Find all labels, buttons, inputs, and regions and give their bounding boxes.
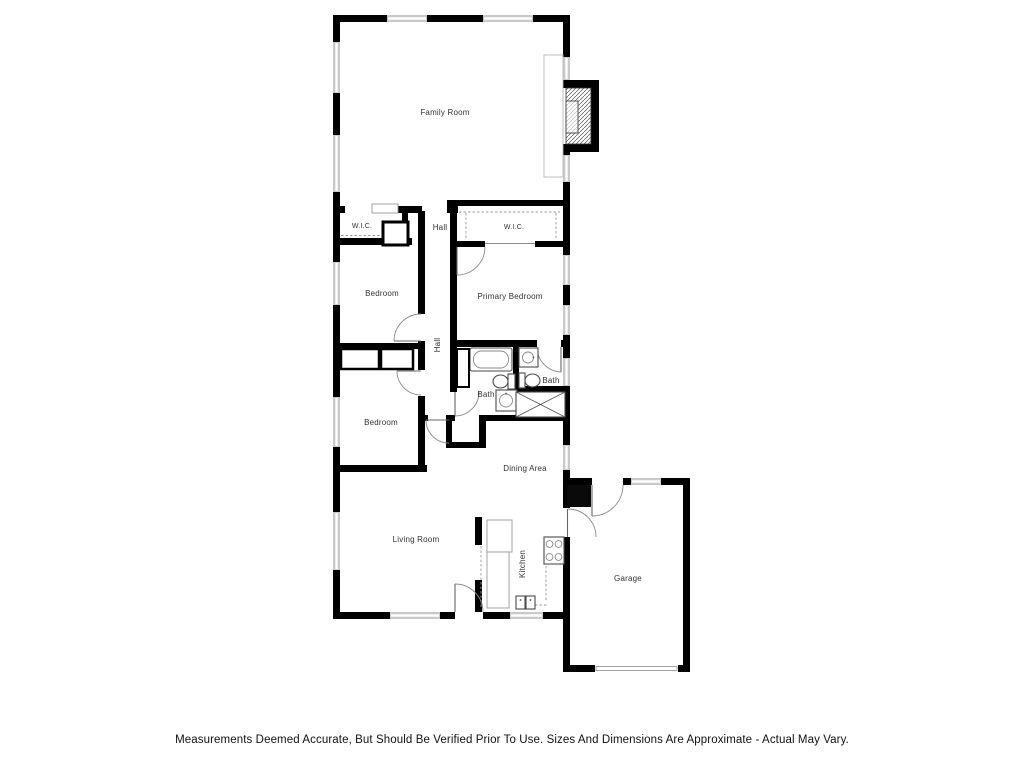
room-label-hall-upper: Hall — [433, 223, 448, 232]
cased-opening — [372, 204, 398, 213]
room-label-dining-area: Dining Area — [503, 464, 547, 473]
wall — [563, 619, 570, 672]
room-label-wic-left: W.I.C. — [352, 223, 372, 230]
room-label-bedroom-1: Bedroom — [365, 289, 399, 298]
wall — [450, 340, 537, 347]
door-opening — [592, 478, 623, 485]
water-heater — [567, 485, 591, 507]
wall — [535, 241, 570, 247]
wall — [418, 211, 425, 314]
floor-plan-page: Family Room W.I.C. Hall W.I.C. Bedroom P… — [0, 0, 1024, 768]
faucet — [533, 357, 535, 359]
sink-counter — [519, 348, 538, 367]
room-label-bath-hall: Bath — [477, 390, 494, 399]
wall — [450, 241, 485, 247]
primary-bedroom-door — [457, 247, 485, 275]
closet — [341, 349, 379, 369]
bedroom2-door — [397, 371, 421, 395]
stove — [544, 537, 564, 564]
drain — [520, 599, 522, 601]
faucet — [505, 393, 507, 395]
kitchen-sink — [516, 596, 525, 609]
room-label-living-room: Living Room — [393, 535, 440, 544]
hall-bath-door — [455, 392, 479, 416]
garage-door — [596, 667, 677, 671]
drain — [530, 599, 532, 601]
bedroom1-door — [394, 314, 421, 341]
toilet-tank — [508, 374, 515, 389]
kitchen-sink — [526, 596, 535, 609]
closet-wall — [446, 442, 486, 448]
firebox — [566, 101, 578, 133]
room-label-bedroom-2: Bedroom — [364, 418, 398, 427]
room-label-family-room: Family Room — [420, 108, 469, 117]
garage-wall — [683, 478, 690, 672]
room-label-wic-right: W.I.C. — [504, 224, 524, 231]
dining-hall-door — [426, 420, 449, 443]
refrigerator — [487, 520, 512, 552]
fireplace-wall — [591, 80, 599, 152]
wall — [418, 396, 425, 472]
toilet — [525, 374, 540, 387]
room-label-garage: Garage — [614, 574, 642, 583]
wall — [333, 206, 345, 213]
floor-plan-image: Family Room W.I.C. Hall W.I.C. Bedroom P… — [0, 0, 1024, 768]
wall — [475, 517, 482, 545]
wall — [333, 465, 427, 472]
hearth — [544, 55, 563, 177]
toilet — [493, 375, 508, 388]
fireplace-wall — [563, 144, 598, 152]
room-label-hall-vertical: Hall — [433, 338, 442, 353]
disclaimer-text: Measurements Deemed Accurate, But Should… — [0, 734, 1024, 746]
door-opening — [563, 508, 570, 537]
room-label-primary-bedroom: Primary Bedroom — [477, 292, 542, 301]
room-label-bath-primary: Bath — [542, 376, 559, 385]
wall — [561, 340, 570, 347]
wall — [450, 200, 570, 206]
toilet-tank — [519, 373, 525, 388]
closet — [381, 349, 413, 369]
small-closet — [383, 222, 408, 245]
primary-bath-door — [537, 347, 561, 372]
kitchen-counter — [487, 552, 509, 608]
wall — [450, 200, 457, 241]
garage-wall — [563, 478, 690, 485]
room-label-kitchen: Kitchen — [518, 550, 527, 578]
linen-closet — [457, 349, 469, 387]
door-opening — [455, 612, 483, 619]
wall — [333, 15, 570, 22]
fixtures — [341, 55, 591, 609]
garage-service-door — [592, 485, 623, 516]
wall — [450, 247, 457, 392]
